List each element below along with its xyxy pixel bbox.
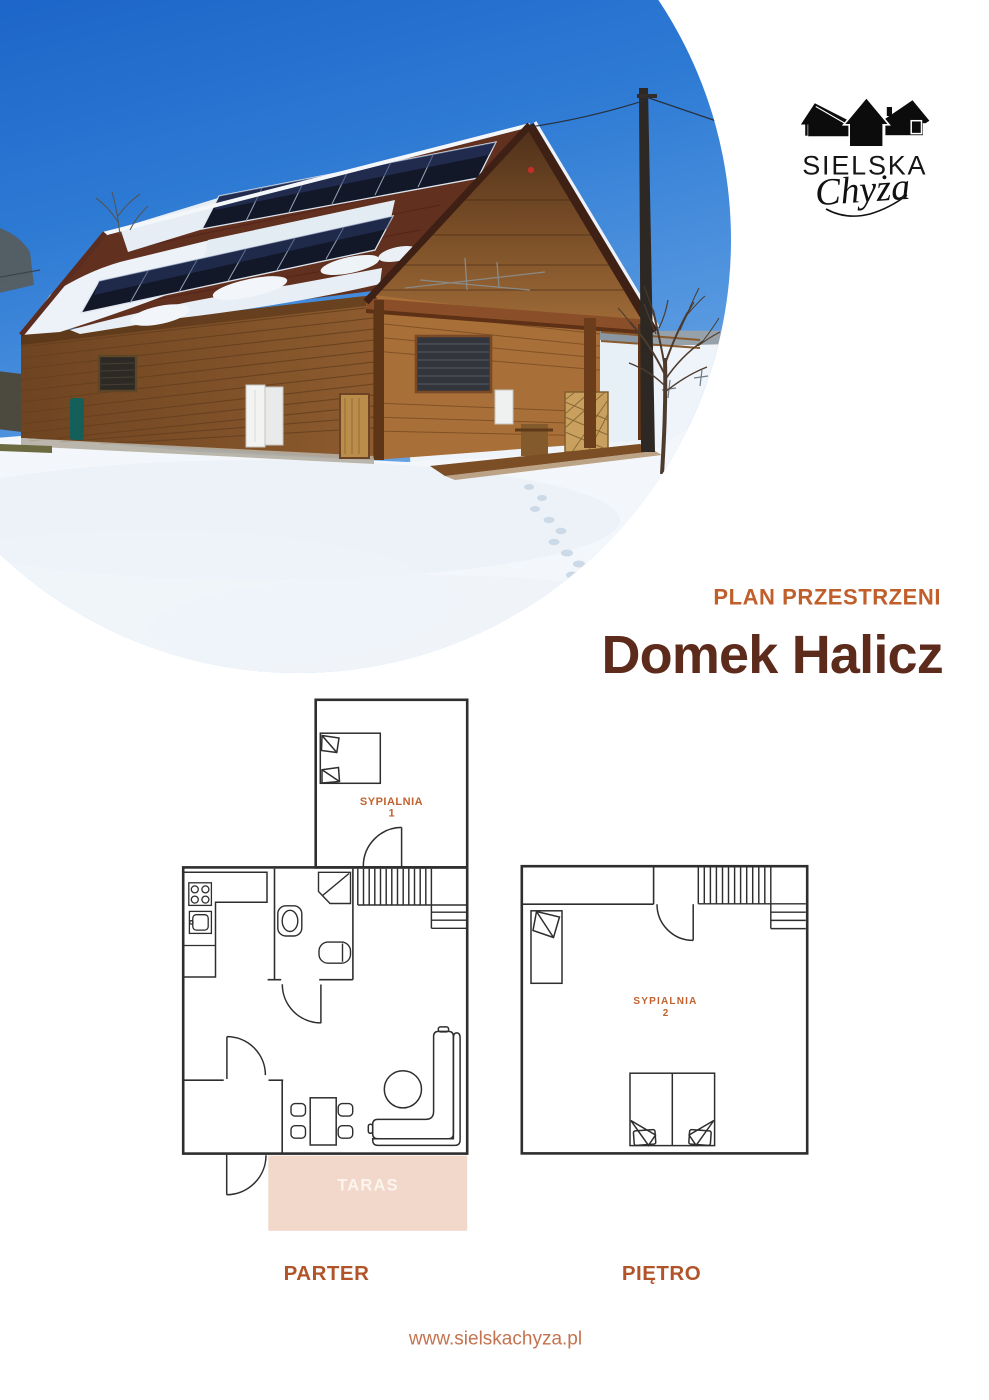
svg-text:Chyża: Chyża xyxy=(814,166,912,215)
svg-text:SYPIALNIA: SYPIALNIA xyxy=(633,996,697,1007)
svg-text:TARAS: TARAS xyxy=(337,1177,399,1195)
svg-text:SYPIALNIA: SYPIALNIA xyxy=(360,796,423,808)
svg-text:Domek Halicz: Domek Halicz xyxy=(601,625,943,685)
svg-text:2: 2 xyxy=(663,1008,669,1019)
svg-text:PLAN PRZESTRZENI: PLAN PRZESTRZENI xyxy=(713,585,941,610)
svg-text:1: 1 xyxy=(388,808,394,820)
svg-text:PIĘTRO: PIĘTRO xyxy=(622,1262,701,1285)
svg-text:www.sielskachyza.pl: www.sielskachyza.pl xyxy=(408,1329,582,1350)
svg-text:PARTER: PARTER xyxy=(284,1262,370,1285)
